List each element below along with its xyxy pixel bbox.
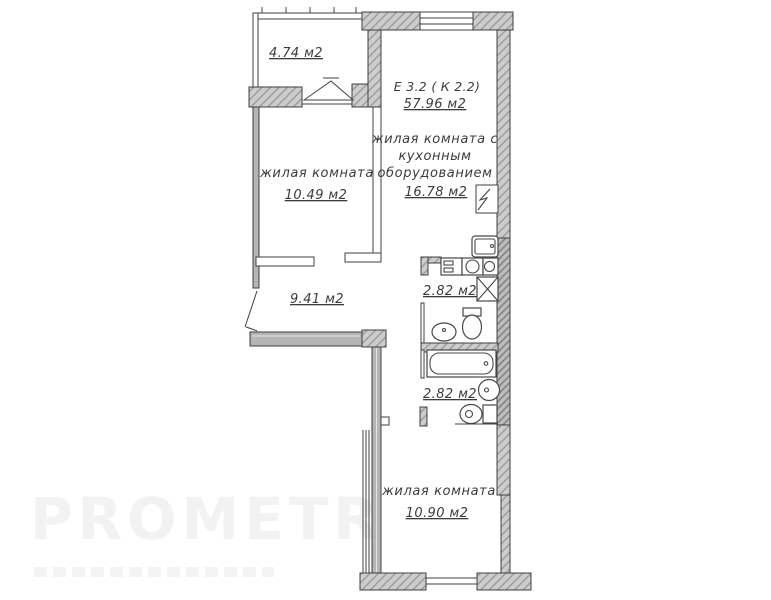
lower-partition-wall (363, 347, 389, 573)
hallway-south-wall-block (362, 330, 386, 347)
living1-south-wall-stub-left (256, 257, 314, 266)
unit-area-label: 57.96 м2 (404, 97, 467, 112)
bath2-west-wall (421, 350, 424, 378)
shaft-lines (363, 430, 369, 573)
hallway-south-wall (250, 332, 362, 346)
kitchen-west-wall (368, 30, 381, 107)
living1-area-label: 10.49 м2 (285, 188, 348, 203)
balcony-glazing-left (253, 13, 258, 88)
kitchen-area-label: 16.78 м2 (405, 185, 468, 200)
east-wall-bath-section (497, 238, 510, 425)
balcony-wall-left (249, 87, 302, 107)
bathroom-2: 2.82 м2 (420, 350, 500, 426)
balcony-wall-right (352, 84, 370, 107)
balcony-glazing-top (253, 13, 362, 19)
bath1-area-label: 2.82 м2 (423, 284, 477, 299)
glazing-tick-marks (262, 7, 356, 13)
balcony-area-label: 4.74 м2 (269, 46, 323, 61)
hallway-area-label: 9.41 м2 (290, 292, 344, 307)
east-wall-lower (501, 495, 510, 575)
kitchen-window-icon (420, 12, 473, 30)
floor-plan-drawing: 4.74 м2 жилая комната 10.49 м2 Е 3.2 ( К… (0, 0, 771, 600)
bath1-west-wall (421, 303, 424, 343)
toilet2-icon (460, 405, 482, 424)
living-room-1: жилая комната 10.49 м2 (253, 107, 381, 288)
living2-area-label: 10.90 м2 (406, 506, 469, 521)
living1-right-partition (373, 107, 381, 257)
entrance-door-leaf (245, 291, 257, 327)
bath2-area-label: 2.82 м2 (423, 387, 477, 402)
kitchen-name-line2: кухонным (398, 149, 471, 164)
living2-bottom-wall-right (477, 573, 531, 590)
living2-bottom-wall-left (360, 573, 426, 590)
toilet1-icon (463, 315, 482, 339)
wall-marker-square (381, 417, 389, 425)
hallway: 9.41 м2 (245, 291, 386, 347)
bath2-west-stub (420, 407, 427, 426)
kitchen-top-wall-right (473, 12, 513, 30)
balcony-door-icon (304, 81, 353, 100)
bathtub-icon (427, 350, 496, 377)
toilet2-tank (483, 405, 497, 423)
bathroom-1: 2.82 м2 (421, 257, 498, 352)
unit-label: Е 3.2 ( К 2.2) (394, 79, 480, 94)
balcony: 4.74 м2 (249, 7, 370, 107)
living2-name-label: жилая комната (381, 484, 496, 499)
living1-name-label: жилая комната (259, 166, 374, 181)
kitchen-top-wall-left (362, 12, 420, 30)
kitchen-name-line1: жилая комната с (371, 132, 498, 147)
entrance-door-swing-arc (246, 327, 257, 331)
stove-icon (483, 258, 498, 275)
bath1-north-stub-v (421, 257, 428, 275)
living1-south-wall-stub-right (345, 253, 381, 262)
kitchen-name-line3: оборудованием (378, 166, 493, 181)
floor-plan-page: PROMETR 4.74 м2 (0, 0, 771, 600)
